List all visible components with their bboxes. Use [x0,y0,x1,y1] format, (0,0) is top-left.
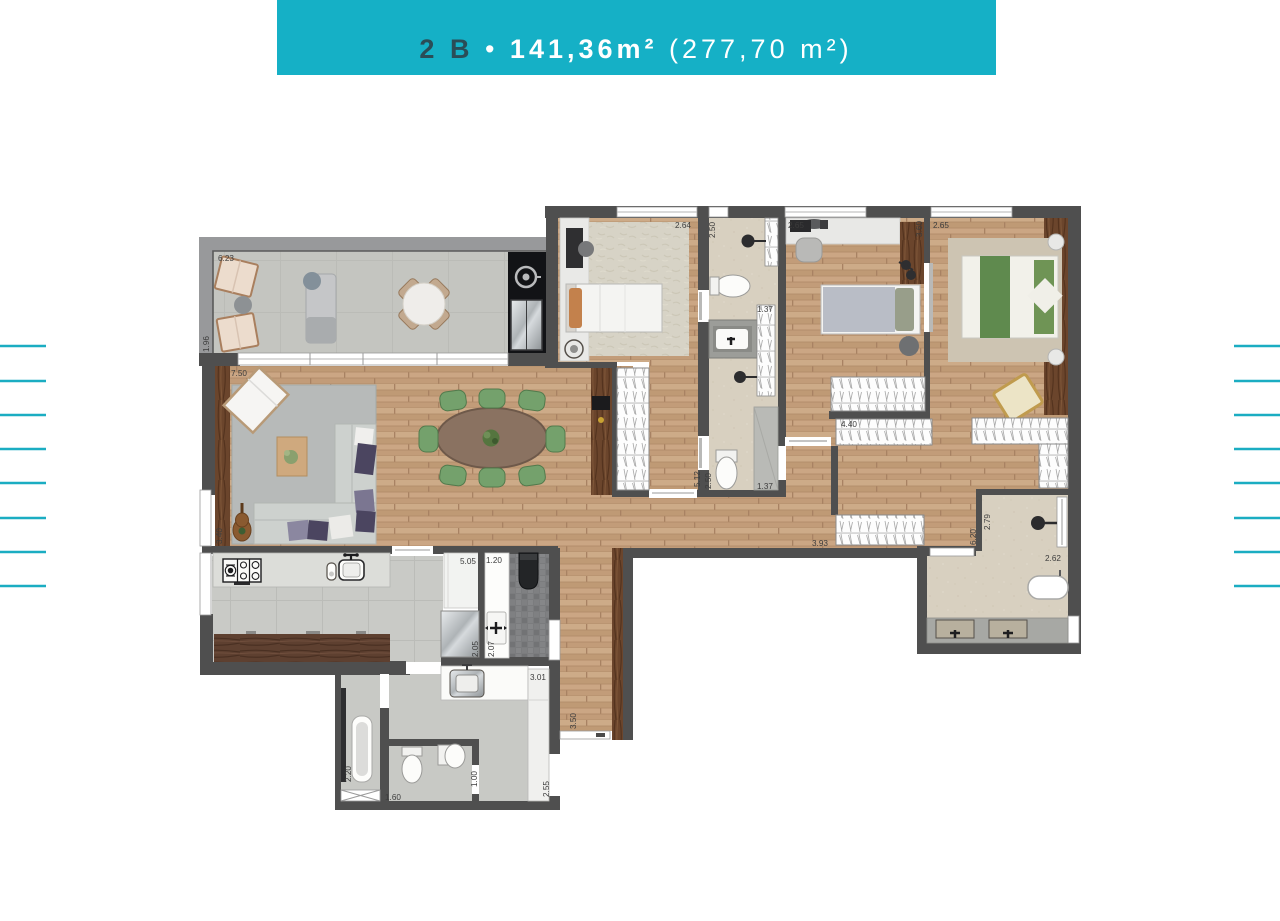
svg-text:6.20: 6.20 [969,529,978,545]
svg-text:3.01: 3.01 [530,673,546,682]
svg-text:1.60: 1.60 [385,793,401,802]
svg-text:1.37: 1.37 [757,482,773,491]
svg-text:3.93: 3.93 [812,539,828,548]
svg-text:2.64: 2.64 [675,221,691,230]
svg-text:2.65: 2.65 [933,221,949,230]
svg-text:4.40: 4.40 [841,420,857,429]
svg-text:2.20: 2.20 [344,766,353,782]
svg-text:2 B • 141,36m² (277,70 m²): 2 B • 141,36m² (277,70 m²) [419,34,852,64]
svg-text:2.50: 2.50 [708,222,717,238]
svg-text:6.23: 6.23 [218,254,234,263]
svg-text:5.05: 5.05 [460,557,476,566]
svg-text:7.50: 7.50 [231,369,247,378]
svg-text:2.65: 2.65 [788,221,804,230]
svg-text:1.37: 1.37 [757,305,773,314]
svg-text:2.79: 2.79 [983,514,992,530]
svg-text:2.50: 2.50 [704,473,713,489]
svg-text:3.40: 3.40 [215,528,224,544]
svg-text:2.05: 2.05 [471,641,480,657]
svg-text:5.12: 5.12 [693,471,702,487]
svg-text:2.55: 2.55 [542,781,551,797]
svg-text:1.00: 1.00 [470,771,479,787]
svg-text:2.07: 2.07 [487,641,496,657]
svg-text:2.62: 2.62 [1045,554,1061,563]
svg-text:3.60: 3.60 [915,221,924,237]
svg-text:1.20: 1.20 [486,556,502,565]
svg-text:1.96: 1.96 [202,336,211,352]
svg-text:3.50: 3.50 [569,713,578,729]
